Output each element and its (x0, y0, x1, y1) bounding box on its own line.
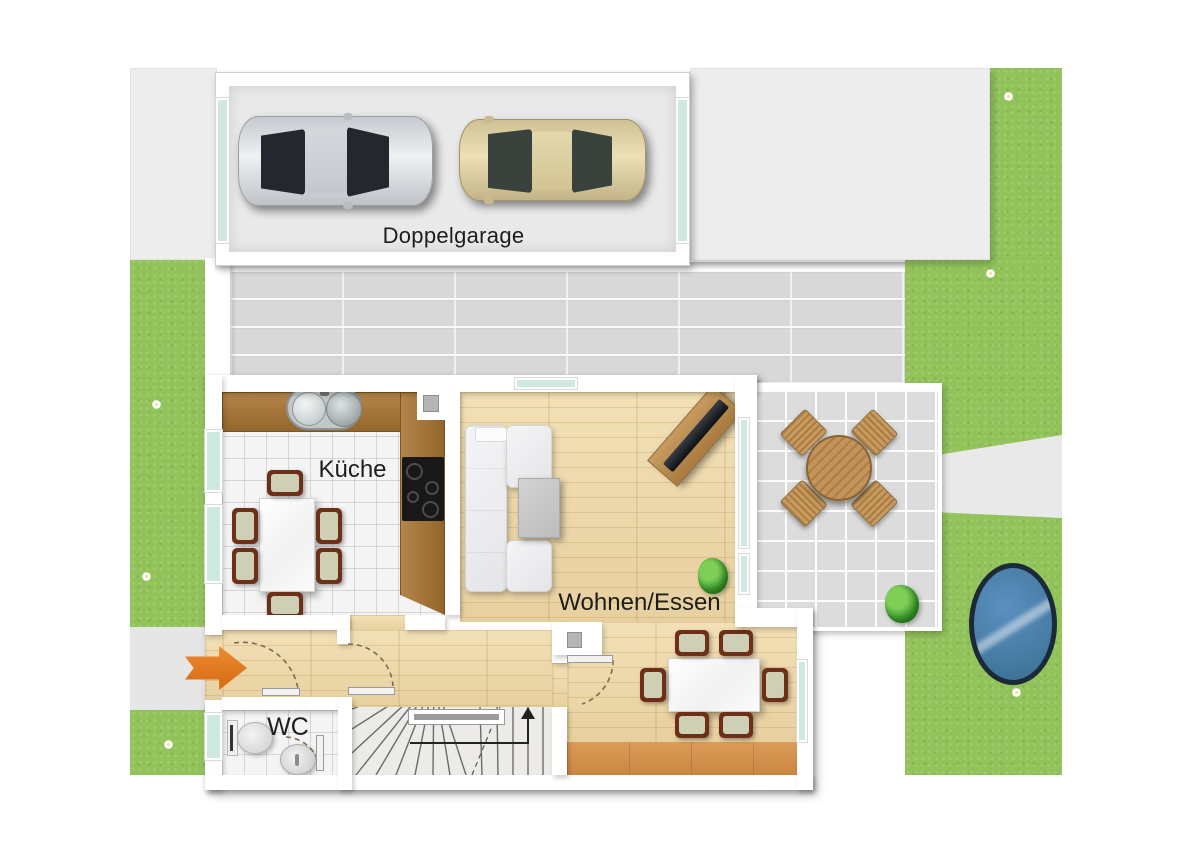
coffee-table (518, 478, 560, 538)
wall-kitchen-living (445, 392, 460, 615)
driveway-left (130, 68, 217, 260)
daisy (1004, 92, 1013, 101)
burner (422, 501, 439, 518)
kitchen-label: Küche (290, 456, 415, 484)
window-living-right-upper (739, 418, 749, 548)
living-label: Wohnen/Essen (547, 589, 732, 617)
sofa-spine (465, 425, 507, 592)
daisy (986, 269, 995, 278)
garage-label: Doppelgarage (229, 223, 678, 249)
kitchen-sink (286, 386, 362, 430)
dining-table (668, 658, 760, 712)
living-door-leaf (567, 655, 613, 663)
window-living-top (515, 378, 577, 389)
wall-top (205, 375, 757, 392)
kitchen-chair-right-1 (316, 508, 342, 544)
wc-toilet-slot (230, 725, 233, 751)
living-doorway-floor (552, 663, 567, 707)
stairs-handrail (408, 709, 505, 725)
handrail-bar (414, 714, 499, 720)
garage-door-right (676, 98, 689, 243)
wall-stairs-dining (552, 707, 567, 775)
car-silver-mirror-bottom (343, 202, 353, 209)
wc-sink-tap (295, 754, 299, 766)
window-wc (205, 713, 222, 760)
wall-kitchen-hall-right (405, 615, 445, 630)
window-kitchen-1 (205, 430, 222, 492)
terrace-plant (885, 585, 919, 623)
sink-bowl-right (326, 391, 362, 427)
window-dining-right (797, 660, 807, 742)
entrance-door-leaf (262, 688, 300, 696)
wall-kitchen-door-jamb (337, 630, 350, 644)
courtyard-paving (230, 270, 905, 383)
wc-label: WC (250, 713, 326, 742)
car-beige-windshield (488, 129, 532, 193)
kitchen-doorway-floor (350, 615, 405, 630)
car-beige-mirror-top (484, 116, 494, 123)
wall-bottom (205, 775, 813, 790)
car-silver-mirror-top (343, 113, 353, 120)
dining-accent-floor (567, 742, 797, 775)
car-beige-rear-window (572, 129, 612, 193)
garage: Doppelgarage (215, 72, 690, 266)
dining-chair-top-2 (719, 630, 753, 656)
daisy (142, 572, 151, 581)
car-silver-roof (305, 131, 347, 193)
sofa-arm-bottom (506, 540, 552, 592)
kitchen-corner-pillar (423, 395, 439, 412)
car-silver (238, 116, 433, 206)
dining-chair-bottom-2 (719, 712, 753, 738)
dining-chair-top-1 (675, 630, 709, 656)
wall-wc-right (338, 697, 352, 790)
kitchen-chair-left-2 (232, 548, 258, 584)
garage-door-left (216, 98, 229, 243)
car-silver-windshield (347, 127, 389, 197)
sink-bowl-left (292, 392, 326, 426)
dining-chair-bottom-1 (675, 712, 709, 738)
floorplan-canvas: Doppelgarage (0, 0, 1200, 848)
lawn-top-right (988, 68, 1062, 258)
sofa-pillow (475, 427, 507, 442)
pond-ripple (971, 594, 1057, 655)
daisy (152, 400, 161, 409)
kitchen-table (259, 498, 315, 592)
window-kitchen-2 (205, 505, 222, 583)
daisy (164, 740, 173, 749)
window-living-right-lower (739, 554, 749, 594)
dining-chair-right (762, 668, 788, 702)
courtyard-left-wall (205, 258, 230, 383)
pond (969, 563, 1057, 685)
pillar-living (567, 632, 582, 648)
dining-chair-left (640, 668, 666, 702)
lawn-left-upper (130, 258, 215, 627)
burner (425, 481, 439, 495)
car-beige (459, 119, 646, 201)
kitchen-chair-right-2 (316, 548, 342, 584)
terrace (751, 383, 942, 631)
burner (407, 491, 419, 503)
kitchen-door-leaf (348, 687, 395, 695)
wall-kitchen-hall-left (222, 615, 350, 630)
wall-wc-top (222, 697, 338, 710)
car-silver-rear-window (261, 129, 305, 195)
plot-area: Doppelgarage (130, 68, 1062, 790)
kitchen-chair-left-1 (232, 508, 258, 544)
daisy (1012, 688, 1021, 697)
car-beige-mirror-bottom (484, 197, 494, 204)
car-beige-roof (532, 132, 572, 190)
driveway-right (690, 68, 990, 260)
